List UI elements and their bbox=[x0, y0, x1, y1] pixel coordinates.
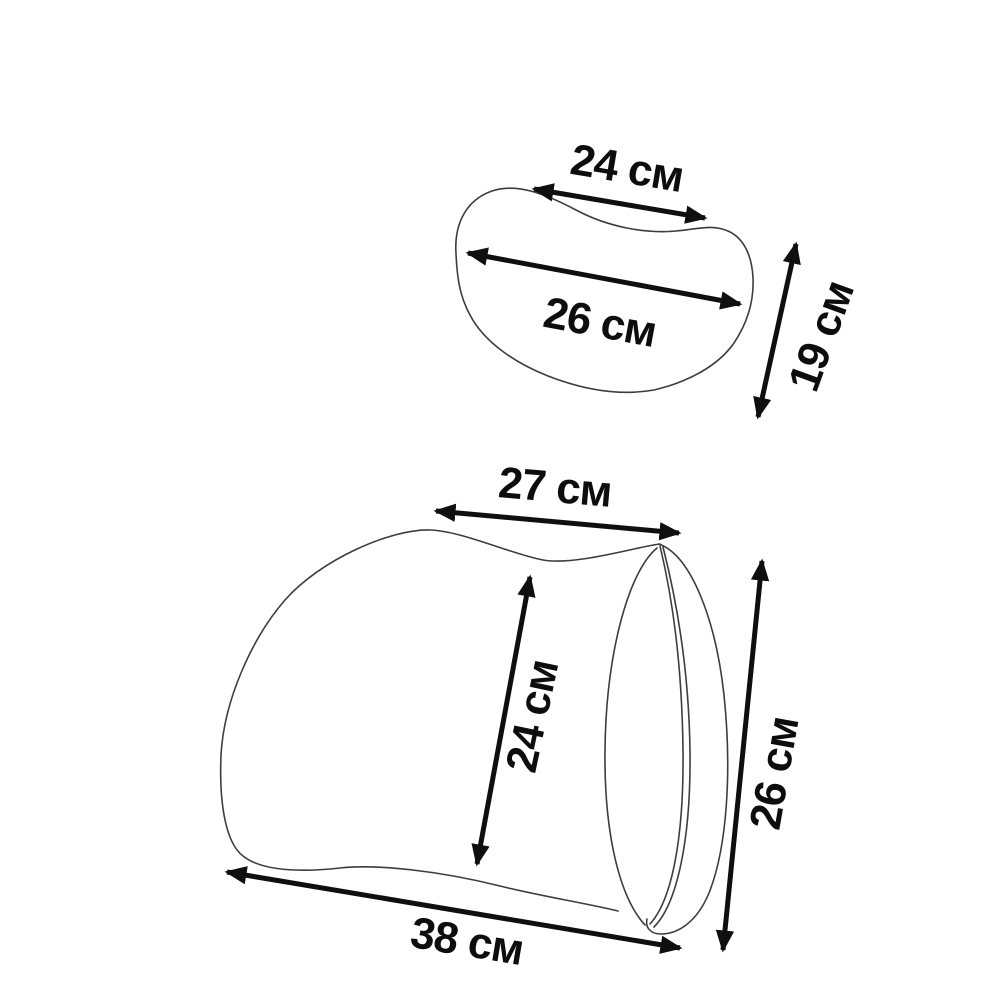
headrest-full-width-label: 26 см bbox=[540, 288, 660, 357]
lumbar-endcap-inner-ellipse bbox=[605, 548, 657, 925]
lumbar-top-width-arrow bbox=[436, 511, 679, 533]
headrest-top-width-label: 24 см bbox=[567, 135, 687, 202]
lumbar-endcap-seam-line-1 bbox=[650, 546, 683, 924]
pillow-dimensions-diagram: 24 см 26 см 19 см 27 см 24 см 26 см 38 с… bbox=[0, 0, 1000, 1000]
lumbar-front-height-label: 24 см bbox=[497, 656, 568, 777]
lumbar-endcap-outer-ellipse bbox=[647, 544, 728, 934]
headrest-height-label: 19 см bbox=[779, 275, 864, 398]
lumbar-body-outline bbox=[221, 530, 660, 911]
diagram-canvas: 24 см 26 см 19 см 27 см 24 см 26 см 38 с… bbox=[0, 0, 1000, 1000]
headrest-outline bbox=[456, 188, 753, 392]
dimension-arrows bbox=[227, 189, 796, 950]
headrest-height-arrow bbox=[758, 244, 796, 417]
lumbar-side-view bbox=[221, 530, 728, 934]
headrest-full-width-arrow bbox=[468, 253, 740, 304]
lumbar-top-width-label: 27 см bbox=[496, 458, 613, 517]
dimension-labels: 24 см 26 см 19 см 27 см 24 см 26 см 38 с… bbox=[407, 135, 864, 975]
headrest-top-view bbox=[456, 188, 753, 392]
lumbar-side-height-label: 26 см bbox=[741, 713, 809, 833]
